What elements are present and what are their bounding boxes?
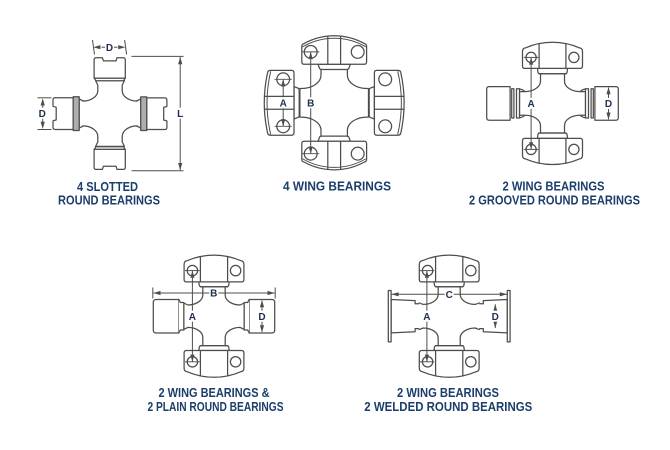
svg-text:ROUND BEARINGS: ROUND BEARINGS — [58, 194, 160, 208]
svg-text:D: D — [258, 312, 265, 323]
svg-text:L: L — [177, 109, 183, 120]
svg-text:D: D — [605, 99, 612, 110]
svg-text:4 WING BEARINGS: 4 WING BEARINGS — [283, 180, 391, 194]
svg-text:2 GROOVED ROUND BEARINGS: 2 GROOVED ROUND BEARINGS — [469, 194, 640, 208]
svg-text:C: C — [446, 290, 453, 301]
svg-text:2 WING BEARINGS &: 2 WING BEARINGS & — [159, 386, 270, 400]
svg-text:B: B — [210, 289, 217, 300]
svg-text:A: A — [189, 312, 196, 323]
svg-text:D: D — [106, 43, 113, 54]
svg-text:4 SLOTTED: 4 SLOTTED — [77, 180, 138, 194]
svg-text:2 WELDED ROUND BEARINGS: 2 WELDED ROUND BEARINGS — [364, 400, 532, 414]
svg-text:2 WING BEARINGS: 2 WING BEARINGS — [397, 386, 499, 400]
svg-text:2 WING BEARINGS: 2 WING BEARINGS — [503, 180, 605, 194]
svg-text:D: D — [492, 312, 499, 323]
svg-text:2 PLAIN ROUND BEARINGS: 2 PLAIN ROUND BEARINGS — [148, 400, 284, 414]
svg-text:B: B — [307, 98, 314, 109]
svg-text:A: A — [280, 98, 287, 109]
svg-text:D: D — [39, 109, 46, 120]
svg-text:A: A — [423, 312, 430, 323]
svg-text:A: A — [527, 99, 534, 110]
